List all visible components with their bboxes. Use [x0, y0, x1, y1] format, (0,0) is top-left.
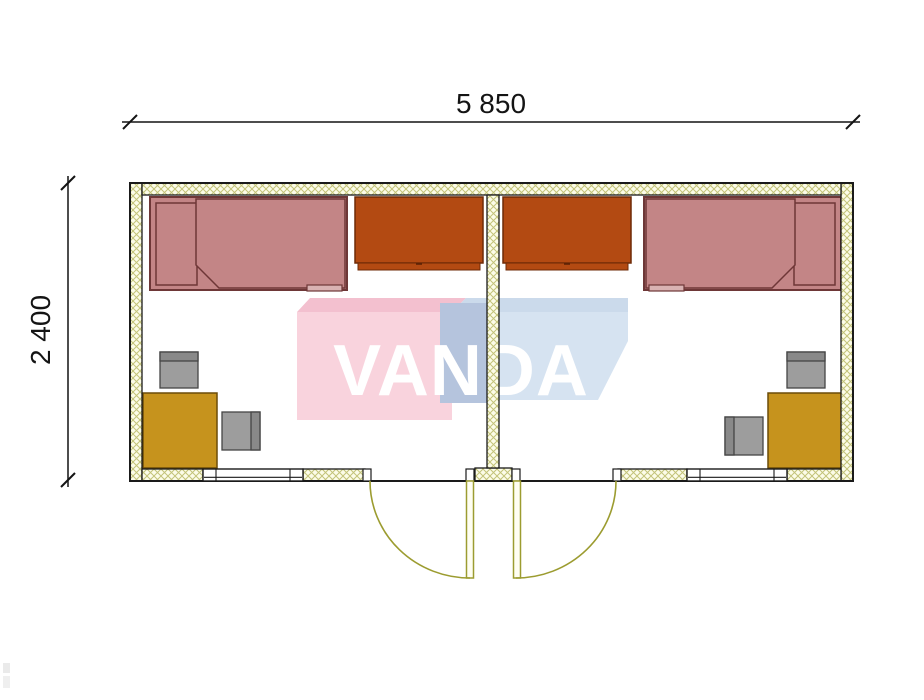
wall-bottom-seg4: [787, 469, 841, 481]
door-swing-arc-left: [370, 481, 470, 578]
watermark: VANDA: [297, 298, 628, 420]
dimension-width: 5 850: [122, 88, 860, 129]
bed-right-blanket: [646, 199, 795, 288]
wall-partition: [487, 195, 499, 468]
edge-watermark-mark: [3, 663, 10, 688]
bed-left-pillow: [156, 203, 197, 285]
chair-left-b-backrest: [251, 412, 260, 450]
door-leaf-right: [514, 481, 521, 578]
window-right: [687, 469, 787, 481]
dim-height-label: 2 400: [25, 295, 56, 365]
wardrobe-right-body: [503, 197, 631, 263]
desk-area-left: [143, 352, 260, 468]
chair-right-a-backrest: [787, 352, 825, 361]
door-swing-arc-right: [516, 481, 616, 578]
bed-right-pillow: [794, 203, 835, 285]
door-right-jamb-cap: [613, 469, 621, 481]
door-left-jamb-cap: [363, 469, 371, 481]
dim-width-label: 5 850: [456, 88, 526, 119]
wardrobe-left: [355, 197, 483, 270]
wall-bottom-seg3: [618, 469, 687, 481]
wardrobe-left-body: [355, 197, 483, 263]
desk-right: [768, 393, 842, 468]
bed-left-foot-step: [307, 285, 342, 291]
desk-area-right: [725, 352, 842, 468]
wardrobe-right: [503, 197, 631, 270]
wall-right: [841, 183, 853, 481]
bed-left: [150, 197, 347, 291]
floor-plan-drawing: VANDA: [0, 0, 924, 700]
wall-left: [130, 183, 142, 481]
doors: [363, 469, 621, 578]
door-left-hinge-cap: [466, 469, 474, 481]
watermark-brand-text: VANDA: [333, 331, 589, 411]
door-leaf-left: [467, 481, 474, 578]
door-right-hinge-cap: [512, 469, 520, 481]
desk-left: [143, 393, 217, 468]
wall-bottom-seg1: [142, 469, 203, 481]
wall-bottom-seg2: [303, 469, 365, 481]
edge-mark-2: [3, 676, 10, 688]
wall-bottom-center-cap: [475, 468, 512, 481]
chair-left-a-backrest: [160, 352, 198, 361]
bed-left-blanket: [196, 199, 345, 288]
bed-right: [644, 197, 841, 291]
chair-right-b-backrest: [725, 417, 734, 455]
wall-top: [142, 183, 841, 195]
dimension-height: 2 400: [25, 176, 75, 487]
edge-mark-1: [3, 663, 10, 673]
floor-plan-page: VANDA: [0, 0, 924, 700]
window-left: [203, 469, 303, 481]
bed-right-foot-step: [649, 285, 684, 291]
